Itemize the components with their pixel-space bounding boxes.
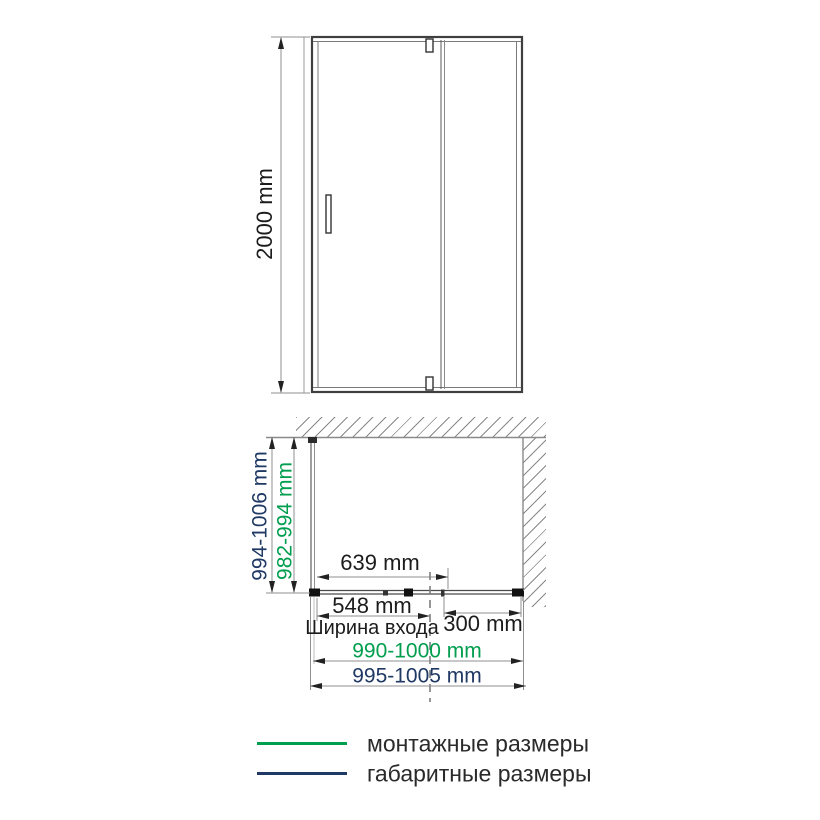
elevation-height-label: 2000 mm [254,168,276,260]
wall-profile-left [309,589,320,597]
door-width-label: 639 mm [340,552,419,574]
hinge-bottom [426,377,433,390]
wall-hatch-right [523,437,546,607]
entrance-caption: Ширина входа [305,618,438,638]
legend-overall-line [257,772,347,775]
elevation-view [271,37,522,393]
technical-drawing: 2000 mm 994-1006 mm 982-994 mm 639 mm 54… [0,0,820,820]
mounting-width-label: 990-1000 mm [352,641,482,662]
wall-hatch-top [296,417,546,437]
panel-joint-mark [441,590,445,597]
door-handle [326,195,331,233]
hinge-top [426,39,433,52]
plan-overall-depth-label: 994-1006 mm [250,451,271,581]
legend-overall-label: габаритные размеры [367,761,592,788]
legend-mounting-line [257,742,347,745]
plan-mounting-depth-label: 982-994 mm [275,462,296,580]
side-glass-panel [308,437,317,592]
door-divider [441,40,445,389]
entrance-width-label: 548 mm [332,595,411,617]
overall-width-label: 995-1005 mm [352,666,482,687]
fixed-panel-label: 300 mm [443,613,522,635]
drawing-linework [0,0,820,820]
legend-mounting-label: монтажные размеры [367,731,589,758]
